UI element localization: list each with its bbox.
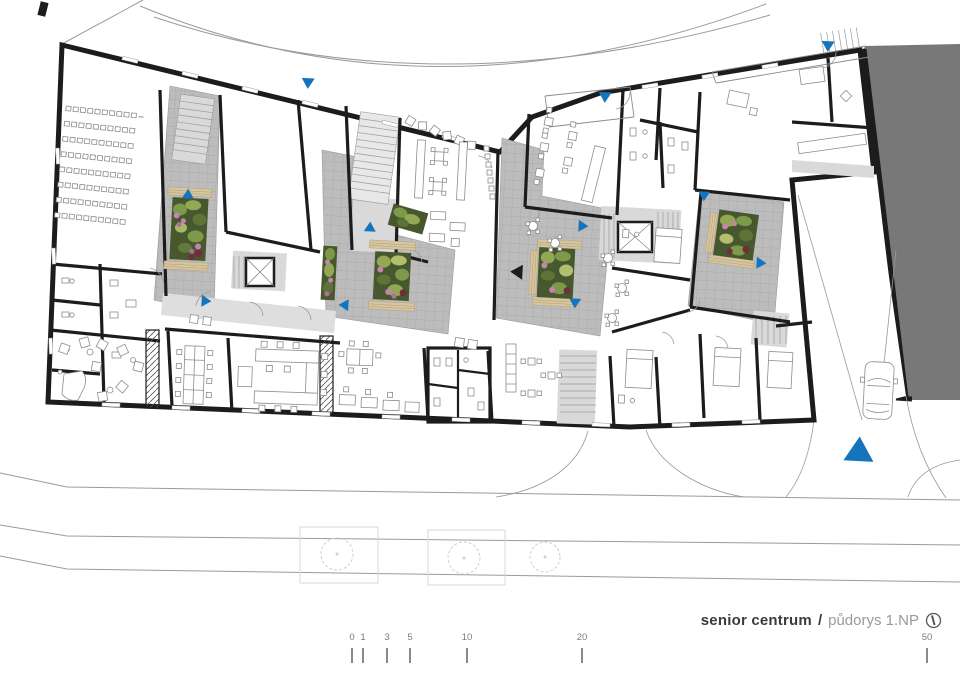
entrance-arrow-driveway-entry	[843, 436, 874, 462]
tree-plot	[300, 527, 378, 583]
title-block: senior centrum / půdorys 1.NP	[701, 612, 942, 629]
tree-icon	[321, 538, 353, 570]
planter	[704, 208, 761, 268]
entrance-arrow-entry-top-left	[301, 78, 315, 89]
walkway-edge	[496, 431, 588, 497]
tree-icon	[530, 542, 560, 572]
north-arrow-icon	[925, 612, 942, 629]
scale-bar: 0135102050	[0, 632, 960, 674]
sheet: senior centrum / půdorys 1.NP 0135102050	[0, 0, 960, 678]
project-title: senior centrum	[701, 612, 812, 629]
tree-icon	[448, 542, 480, 574]
drawing-title: půdorys 1.NP	[828, 612, 919, 629]
tree-plot	[428, 530, 505, 585]
floor-plan	[0, 0, 960, 678]
title-separator: /	[818, 612, 822, 629]
walkway-edge	[646, 430, 744, 497]
